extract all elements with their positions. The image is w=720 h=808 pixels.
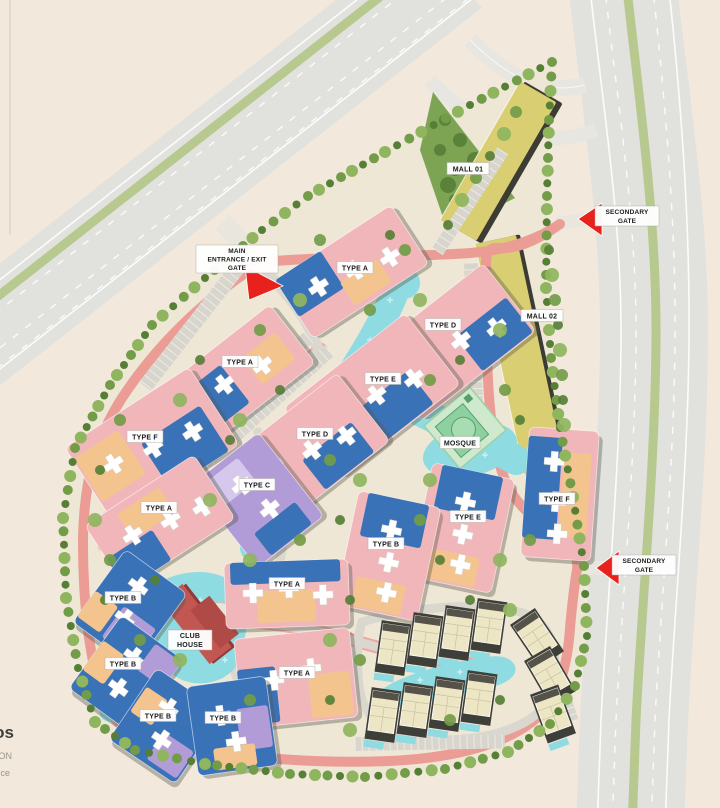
building-label: TYPE E <box>365 373 401 385</box>
svg-text:MALL 02: MALL 02 <box>527 314 557 321</box>
tree-icon <box>515 415 525 425</box>
tree-icon <box>75 432 87 444</box>
svg-text:SECONDARY: SECONDARY <box>622 558 666 565</box>
tree-icon <box>57 512 69 524</box>
tree-icon <box>134 634 146 646</box>
tree-icon <box>374 772 382 780</box>
mall-01-label: MALL 01 <box>447 163 489 175</box>
svg-text:GATE: GATE <box>228 265 247 272</box>
tree-icon <box>379 146 391 158</box>
tree-icon <box>514 740 524 750</box>
tree-icon <box>493 553 507 567</box>
tree-icon <box>558 395 568 405</box>
tree-icon <box>536 64 544 72</box>
tree-icon <box>549 294 561 306</box>
svg-text:TYPE B: TYPE B <box>373 542 399 549</box>
tree-icon <box>570 681 580 691</box>
tree-icon <box>424 374 436 386</box>
tree-icon <box>493 323 507 337</box>
tree-icon <box>360 772 370 782</box>
svg-text:TYPE F: TYPE F <box>544 497 570 504</box>
tree-icon <box>579 644 589 654</box>
tree-icon <box>347 771 359 783</box>
tree-icon <box>303 191 313 201</box>
tree-icon <box>88 412 98 422</box>
tree-icon <box>169 302 177 310</box>
building-label: TYPE B <box>140 710 176 722</box>
tree-icon <box>100 392 108 400</box>
tree-icon <box>556 369 568 381</box>
tree-icon <box>455 355 465 365</box>
tree-icon <box>477 94 487 104</box>
building-label: TYPE A <box>337 262 373 274</box>
svg-text:TYPE A: TYPE A <box>342 266 368 273</box>
svg-text:ce: ce <box>0 768 10 778</box>
tree-icon <box>414 514 426 526</box>
tree-icon <box>579 561 589 571</box>
tree-icon <box>544 115 554 125</box>
tree-icon <box>89 716 101 728</box>
tree-icon <box>70 443 80 453</box>
tree-icon <box>314 234 326 246</box>
tree-icon <box>104 554 116 566</box>
svg-text:TYPE B: TYPE B <box>110 596 136 603</box>
tree-icon <box>82 690 92 700</box>
tree-icon <box>542 165 554 177</box>
tree-icon <box>523 68 535 80</box>
tree-icon <box>452 106 464 118</box>
building-label: TYPE D <box>297 428 333 440</box>
tree-icon <box>87 705 95 713</box>
tree-icon <box>60 541 68 549</box>
tree-icon <box>114 414 126 426</box>
tree-icon <box>323 633 337 647</box>
tree-icon <box>444 714 456 726</box>
tree-icon <box>557 418 571 432</box>
tree-icon <box>542 258 550 266</box>
tree-icon <box>63 485 73 495</box>
building-label: TYPE A <box>279 667 315 679</box>
tree-icon <box>285 769 295 779</box>
master-plan-map: MALL 01 MALL 02 MOSQUE CLUB HOUSE MAIN E… <box>0 0 720 808</box>
svg-text:TYPE A: TYPE A <box>284 671 310 678</box>
tree-icon <box>440 177 456 193</box>
tree-icon <box>545 85 557 97</box>
tree-icon <box>326 179 334 187</box>
svg-text:ON: ON <box>0 751 12 761</box>
tree-icon <box>275 385 285 395</box>
tree-icon <box>345 595 355 605</box>
tree-icon <box>247 232 259 244</box>
tree-icon <box>501 83 509 91</box>
tree-icon <box>335 515 345 525</box>
tree-icon <box>543 218 551 226</box>
tree-icon <box>172 753 182 763</box>
tree-icon <box>455 193 469 207</box>
tree-icon <box>581 603 591 613</box>
tree-icon <box>543 179 551 187</box>
tree-icon <box>294 534 306 546</box>
tree-icon <box>540 282 552 294</box>
tree-icon <box>76 676 88 688</box>
tree-icon <box>542 191 552 201</box>
tree-icon <box>359 161 367 169</box>
tree-icon <box>415 126 427 138</box>
tree-icon <box>546 72 556 82</box>
tree-icon <box>346 165 358 177</box>
tree-icon <box>272 767 284 779</box>
tree-icon <box>354 654 366 666</box>
mall-02-label: MALL 02 <box>521 310 563 322</box>
tree-icon <box>244 694 256 706</box>
tree-icon <box>545 268 559 282</box>
svg-text:TYPE B: TYPE B <box>110 662 136 669</box>
tree-icon <box>551 382 559 390</box>
tree-icon <box>434 144 446 156</box>
tree-icon <box>502 746 514 758</box>
tree-icon <box>485 151 495 161</box>
svg-text:TYPE E: TYPE E <box>370 377 396 384</box>
svg-text:TYPE B: TYPE B <box>145 714 171 721</box>
tree-icon <box>67 634 79 646</box>
tree-icon <box>546 353 556 363</box>
tree-icon <box>524 534 536 546</box>
tree-icon <box>130 745 140 755</box>
tree-icon <box>111 369 123 381</box>
tree-icon <box>572 520 582 530</box>
tree-icon <box>430 121 438 129</box>
tree-icon <box>132 339 144 351</box>
tree-icon <box>157 310 169 322</box>
tree-icon <box>510 106 522 118</box>
tree-icon <box>546 340 554 348</box>
tree-icon <box>141 331 149 339</box>
tree-icon <box>497 127 511 141</box>
tree-icon <box>225 435 235 445</box>
tree-icon <box>157 750 169 762</box>
tree-icon <box>95 465 105 475</box>
tree-icon <box>201 274 209 282</box>
tree-icon <box>546 102 554 110</box>
highway-right <box>589 0 689 808</box>
tree-icon <box>119 737 131 749</box>
tree-icon <box>92 400 104 412</box>
tree-icon <box>441 113 451 123</box>
tree-icon <box>243 553 257 567</box>
tree-icon <box>343 723 357 737</box>
tree-icon <box>543 127 555 139</box>
tree-icon <box>413 293 427 307</box>
club-house-label: CLUB HOUSE <box>168 630 212 650</box>
master-plan: MALL 01 MALL 02 MOSQUE CLUB HOUSE MAIN E… <box>0 0 720 808</box>
secondary-gate-top-label: SECONDARY GATE <box>595 206 659 226</box>
tree-icon <box>400 768 410 778</box>
tree-icon <box>336 772 344 780</box>
tree-icon <box>571 507 579 515</box>
tree-icon <box>69 458 77 466</box>
svg-text:MAIN: MAIN <box>228 248 246 255</box>
tree-icon <box>478 754 488 764</box>
tree-icon <box>269 217 279 227</box>
svg-text:ENTRANCE / EXIT: ENTRANCE / EXIT <box>208 257 267 264</box>
tree-icon <box>543 153 553 163</box>
svg-text:TYPE F: TYPE F <box>132 435 158 442</box>
building-label: TYPE E <box>450 511 486 523</box>
svg-text:SECONDARY: SECONDARY <box>605 209 649 216</box>
tree-icon <box>558 437 568 447</box>
tree-icon <box>173 393 187 407</box>
tree-icon <box>385 230 395 240</box>
tree-icon <box>279 207 291 219</box>
building-label: TYPE B <box>105 658 141 670</box>
tree-icon <box>464 756 476 768</box>
building-label: TYPE A <box>222 356 258 368</box>
svg-text:TYPE A: TYPE A <box>227 360 253 367</box>
tree-icon <box>60 592 72 604</box>
tree-icon <box>293 293 307 307</box>
svg-text:MOSQUE: MOSQUE <box>444 441 476 448</box>
tree-icon <box>323 771 333 781</box>
tree-icon <box>293 201 301 209</box>
main-gate-label: MAIN ENTRANCE / EXIT GATE <box>196 245 278 273</box>
tree-icon <box>440 764 450 774</box>
tree-icon <box>369 153 379 163</box>
tree-icon <box>553 343 567 357</box>
tree-icon <box>580 616 592 628</box>
tree-icon <box>547 57 557 67</box>
tree-icon <box>465 595 475 605</box>
tree-icon <box>120 361 128 369</box>
tree-icon <box>364 304 376 316</box>
tree-icon <box>435 555 445 565</box>
tree-icon <box>212 760 222 770</box>
tree-icon <box>581 590 589 598</box>
tree-icon <box>545 719 555 729</box>
tree-icon <box>565 478 575 488</box>
svg-text:TYPE D: TYPE D <box>302 432 328 439</box>
tree-icon <box>578 548 586 556</box>
tree-icon <box>59 526 69 536</box>
tree-icon <box>61 500 69 508</box>
tree-icon <box>100 724 110 734</box>
tree-icon <box>71 649 81 659</box>
tree-icon <box>62 581 70 589</box>
tree-icon <box>262 767 270 775</box>
tree-icon <box>466 101 474 109</box>
secondary-gate-right-label: SECONDARY GATE <box>612 555 676 575</box>
tree-icon <box>575 655 587 667</box>
svg-text:os: os <box>0 723 14 742</box>
tree-icon <box>258 226 266 234</box>
tree-icon <box>487 87 499 99</box>
tree-icon <box>111 732 119 740</box>
tree-icon <box>525 734 533 742</box>
tree-icon <box>60 566 70 576</box>
tree-icon <box>554 707 562 715</box>
tree-icon <box>353 473 367 487</box>
tree-icon <box>126 350 136 360</box>
tree-icon <box>574 670 582 678</box>
svg-text:TYPE A: TYPE A <box>274 582 300 589</box>
tree-icon <box>495 695 505 705</box>
tree-icon <box>499 384 511 396</box>
tree-icon <box>559 450 571 462</box>
tree-icon <box>173 653 187 667</box>
tree-icon <box>453 133 467 147</box>
tree-icon <box>542 230 552 240</box>
tree-icon <box>541 203 553 215</box>
building-label: TYPE F <box>539 493 575 505</box>
svg-text:GATE: GATE <box>618 218 637 225</box>
tree-icon <box>564 465 572 473</box>
mosque-label: MOSQUE <box>440 437 480 449</box>
tree-icon <box>423 473 437 487</box>
tree-icon <box>336 172 346 182</box>
tree-icon <box>233 413 247 427</box>
tree-icon <box>199 758 211 770</box>
building-cluster <box>224 559 354 633</box>
building-label: TYPE B <box>105 592 141 604</box>
tree-icon <box>179 292 189 302</box>
tree-icon <box>59 552 71 564</box>
building-label: TYPE D <box>425 319 461 331</box>
tree-icon <box>64 470 76 482</box>
tree-icon <box>583 632 591 640</box>
tree-icon <box>313 184 325 196</box>
tree-icon <box>393 141 401 149</box>
tree-icon <box>544 245 554 255</box>
tree-icon <box>187 757 195 765</box>
tree-icon <box>188 281 200 293</box>
tree-icon <box>534 725 546 737</box>
svg-text:GATE: GATE <box>635 567 654 574</box>
tree-icon <box>325 695 335 705</box>
tree-icon <box>324 454 336 466</box>
tree-icon <box>544 141 552 149</box>
tree-icon <box>88 513 102 527</box>
svg-text:TYPE C: TYPE C <box>244 483 270 490</box>
svg-text:CLUB: CLUB <box>180 633 200 640</box>
tree-icon <box>63 607 73 617</box>
tree-icon <box>399 244 411 256</box>
building-label: TYPE A <box>141 502 177 514</box>
tree-icon <box>561 693 573 705</box>
tree-icon <box>195 355 205 365</box>
svg-text:TYPE B: TYPE B <box>210 716 236 723</box>
tree-icon <box>404 134 414 144</box>
tree-icon <box>225 763 233 771</box>
tree-icon <box>147 320 157 330</box>
svg-text:TYPE E: TYPE E <box>455 515 481 522</box>
tree-icon <box>299 771 307 779</box>
building-label: TYPE C <box>239 479 275 491</box>
building-label: TYPE B <box>368 538 404 550</box>
svg-text:TYPE D: TYPE D <box>430 323 456 330</box>
svg-text:MALL 01: MALL 01 <box>453 167 483 174</box>
tree-icon <box>443 220 453 230</box>
tree-icon <box>83 423 91 431</box>
tree-icon <box>309 769 321 781</box>
svg-text:TYPE A: TYPE A <box>146 506 172 513</box>
tree-icon <box>145 749 153 757</box>
tree-icon <box>74 664 82 672</box>
tree-icon <box>203 493 217 507</box>
building-label: TYPE A <box>269 578 305 590</box>
tree-icon <box>254 324 266 336</box>
tree-icon <box>235 762 247 774</box>
tree-icon <box>150 575 160 585</box>
tree-icon <box>249 765 259 775</box>
building-label: TYPE F <box>127 431 163 443</box>
tree-icon <box>579 574 591 586</box>
tree-icon <box>574 532 586 544</box>
tree-icon <box>491 751 499 759</box>
tree-icon <box>503 603 517 617</box>
svg-text:HOUSE: HOUSE <box>177 642 203 649</box>
tree-icon <box>105 380 115 390</box>
tree-icon <box>414 768 422 776</box>
tree-icon <box>454 762 462 770</box>
tree-icon <box>512 75 522 85</box>
building-label: TYPE B <box>205 712 241 724</box>
tree-icon <box>426 764 438 776</box>
tree-icon <box>67 622 75 630</box>
tree-icon <box>386 768 398 780</box>
